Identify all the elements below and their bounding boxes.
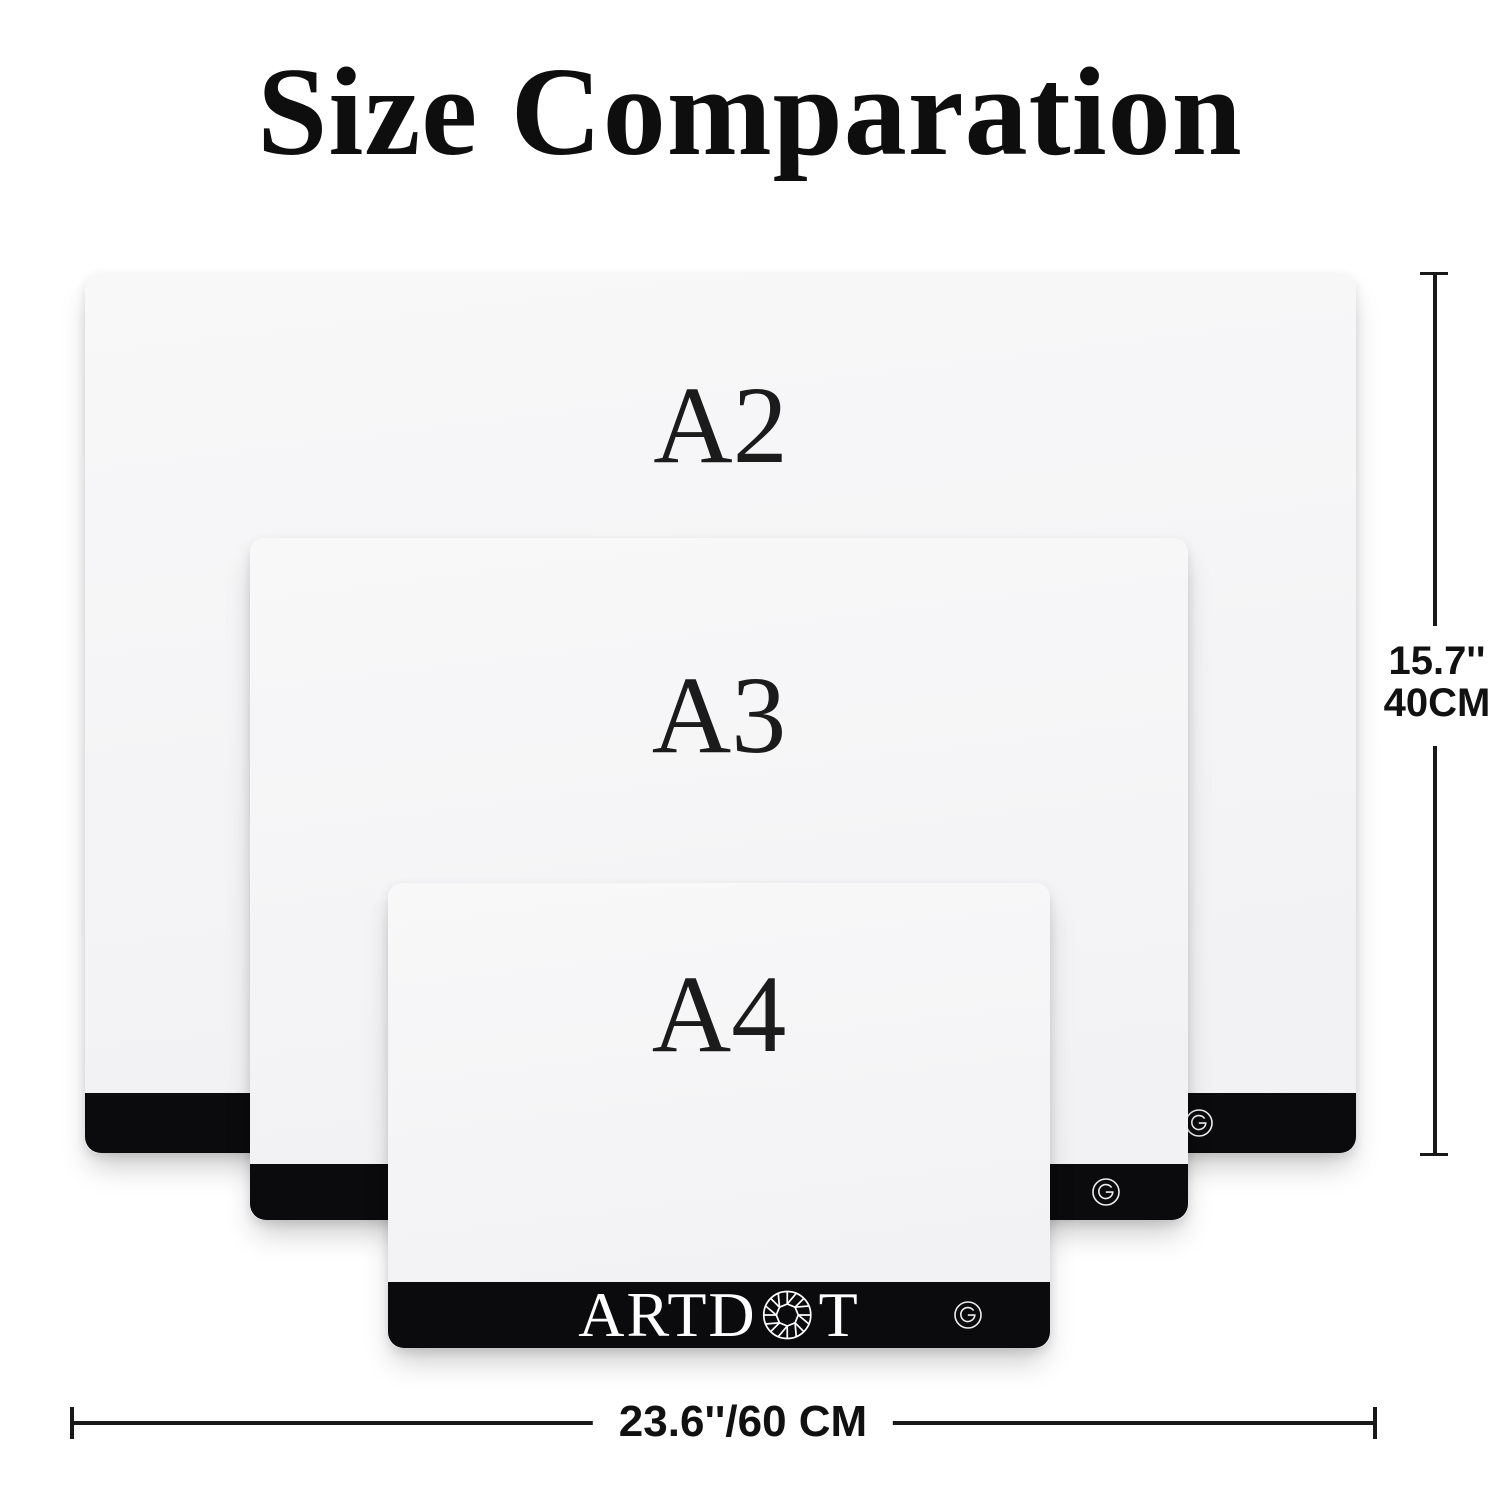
artdot-logo-text-left: ARTD xyxy=(578,1283,756,1347)
g-touch-button-icon xyxy=(953,1300,983,1330)
width-dimension-right-cap xyxy=(1373,1407,1377,1439)
diamond-gem-icon xyxy=(762,1289,814,1341)
height-cm-label: 40CM xyxy=(1384,681,1491,725)
width-dimension-label: 23.6''/60 CM xyxy=(593,1395,893,1449)
g-touch-button-icon xyxy=(1091,1177,1121,1207)
height-dimension-top-cap xyxy=(1420,272,1448,275)
lightpad-a4-label: A4 xyxy=(388,959,1050,1069)
lightpad-a4-bottom-bar: ARTD xyxy=(388,1282,1050,1348)
lightpad-a2-label: A2 xyxy=(85,370,1356,480)
width-dimension-left-cap xyxy=(70,1407,74,1439)
lightpad-a4: A4 ARTD xyxy=(388,883,1050,1348)
size-comparison-infographic: Size Comparation A2 A3 A4 xyxy=(0,0,1500,1500)
height-inches-label: 15.7'' xyxy=(1389,639,1486,683)
artdot-logo: ARTD xyxy=(578,1283,859,1347)
page-title: Size Comparation xyxy=(0,38,1500,188)
g-touch-button-icon xyxy=(1184,1108,1214,1138)
lightpad-a3-label: A3 xyxy=(250,660,1188,770)
height-dimension-label: 15.7''40CM xyxy=(1378,626,1497,746)
height-dimension-bottom-cap xyxy=(1420,1153,1448,1156)
artdot-logo-text-right: T xyxy=(819,1283,860,1347)
